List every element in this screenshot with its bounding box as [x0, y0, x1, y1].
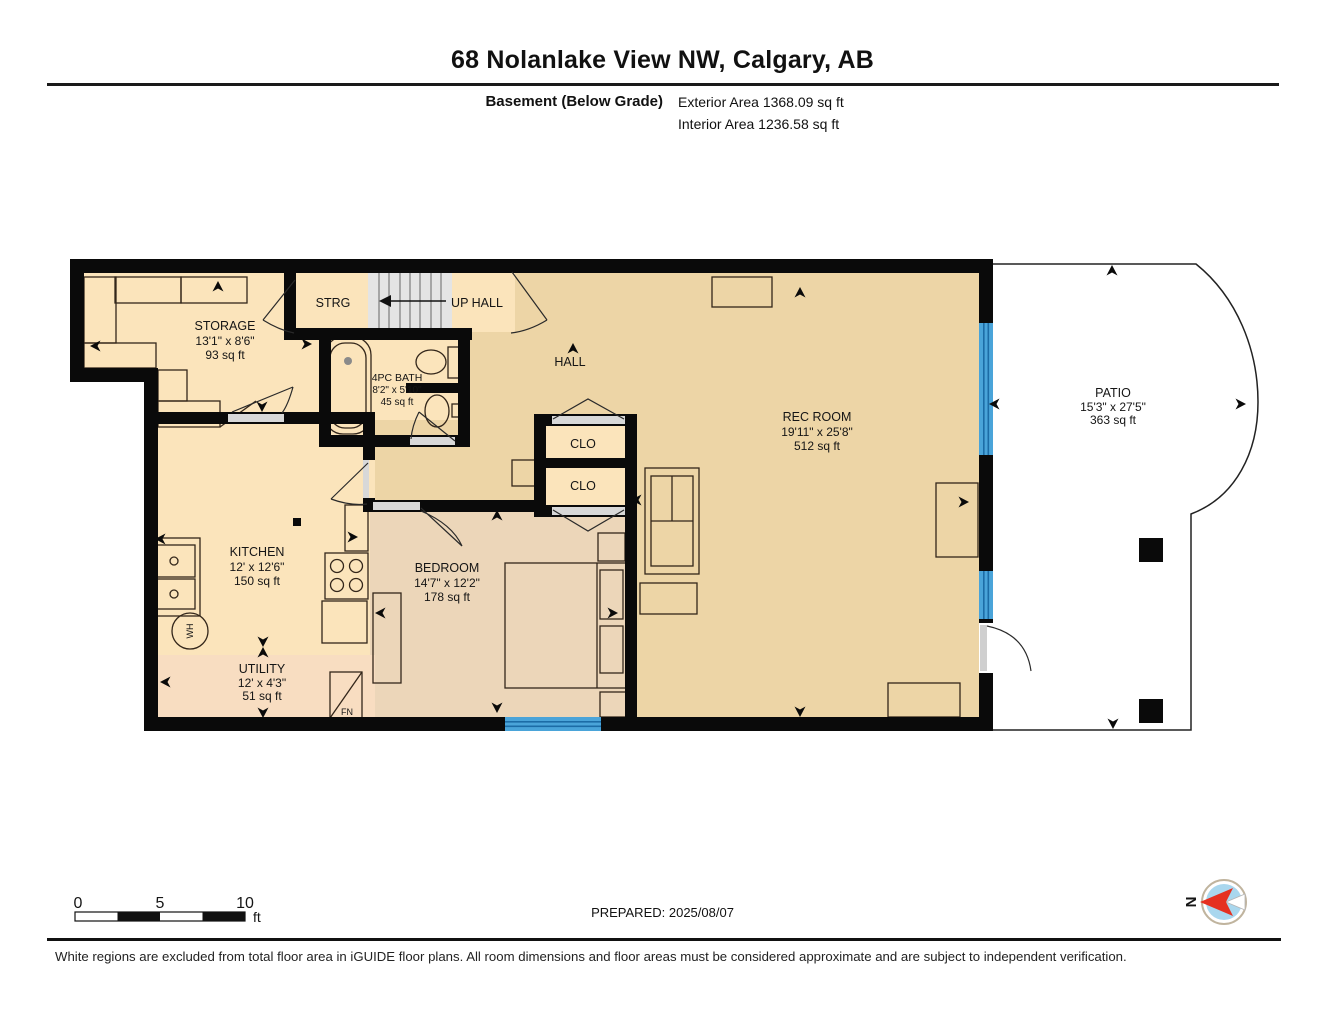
patio-post	[1139, 699, 1163, 723]
patio-outline	[986, 264, 1258, 730]
utility-area: 51 sq ft	[242, 689, 282, 703]
furnace-label: FN	[341, 707, 353, 717]
bedroom-area: 178 sq ft	[424, 590, 471, 604]
window-rec-right-lower	[979, 571, 993, 619]
storage-area: 93 sq ft	[205, 348, 245, 362]
patio-area-label: 363 sq ft	[1090, 413, 1137, 427]
storage-dims: 13'1" x 8'6"	[195, 334, 254, 348]
measurement-dot	[293, 518, 301, 526]
bath-area: 45 sq ft	[381, 397, 414, 408]
window-rec-right-upper	[979, 323, 993, 455]
bath-dims: 8'2" x 5'10"	[372, 385, 422, 396]
patio-area	[986, 264, 1258, 730]
rec-room-label: REC ROOM	[783, 410, 852, 424]
bath-label: 4PC BATH	[372, 372, 423, 384]
clo-upper-label: CLO	[570, 437, 596, 451]
kitchen-dims: 12' x 12'6"	[230, 560, 285, 574]
patio-dims: 15'3" x 27'5"	[1080, 400, 1146, 414]
bedroom-dims: 14'7" x 12'2"	[414, 576, 480, 590]
up-hall-label: UP HALL	[451, 296, 503, 310]
floor-plan-drawing: STORAGE 13'1" x 8'6" 93 sq ft STRG UP HA…	[0, 0, 1325, 1024]
patio-post	[1139, 538, 1163, 562]
kitchen-label: KITCHEN	[230, 545, 285, 559]
rec-room-area: 512 sq ft	[794, 439, 841, 453]
water-heater-label: WH	[185, 624, 195, 639]
storage-label: STORAGE	[195, 319, 256, 333]
prepared-date: PREPARED: 2025/08/07	[0, 905, 1325, 920]
hall-label: HALL	[554, 355, 585, 369]
patio-door-leaf	[980, 625, 987, 671]
bedroom-label: BEDROOM	[415, 561, 480, 575]
footer-disclaimer: White regions are excluded from total fl…	[55, 949, 1127, 964]
rec-room-dims: 19'11" x 25'8"	[781, 425, 853, 439]
kitchen-area: 150 sq ft	[234, 574, 281, 588]
footer-divider	[47, 938, 1281, 941]
floor-plan-page: 68 Nolanlake View NW, Calgary, AB Baseme…	[0, 0, 1325, 1024]
utility-dims: 12' x 4'3"	[238, 676, 286, 690]
window-bedroom	[505, 717, 601, 731]
patio-label: PATIO	[1095, 386, 1131, 400]
utility-label: UTILITY	[239, 662, 286, 676]
clo-lower-label: CLO	[570, 479, 596, 493]
strg-label: STRG	[316, 296, 351, 310]
